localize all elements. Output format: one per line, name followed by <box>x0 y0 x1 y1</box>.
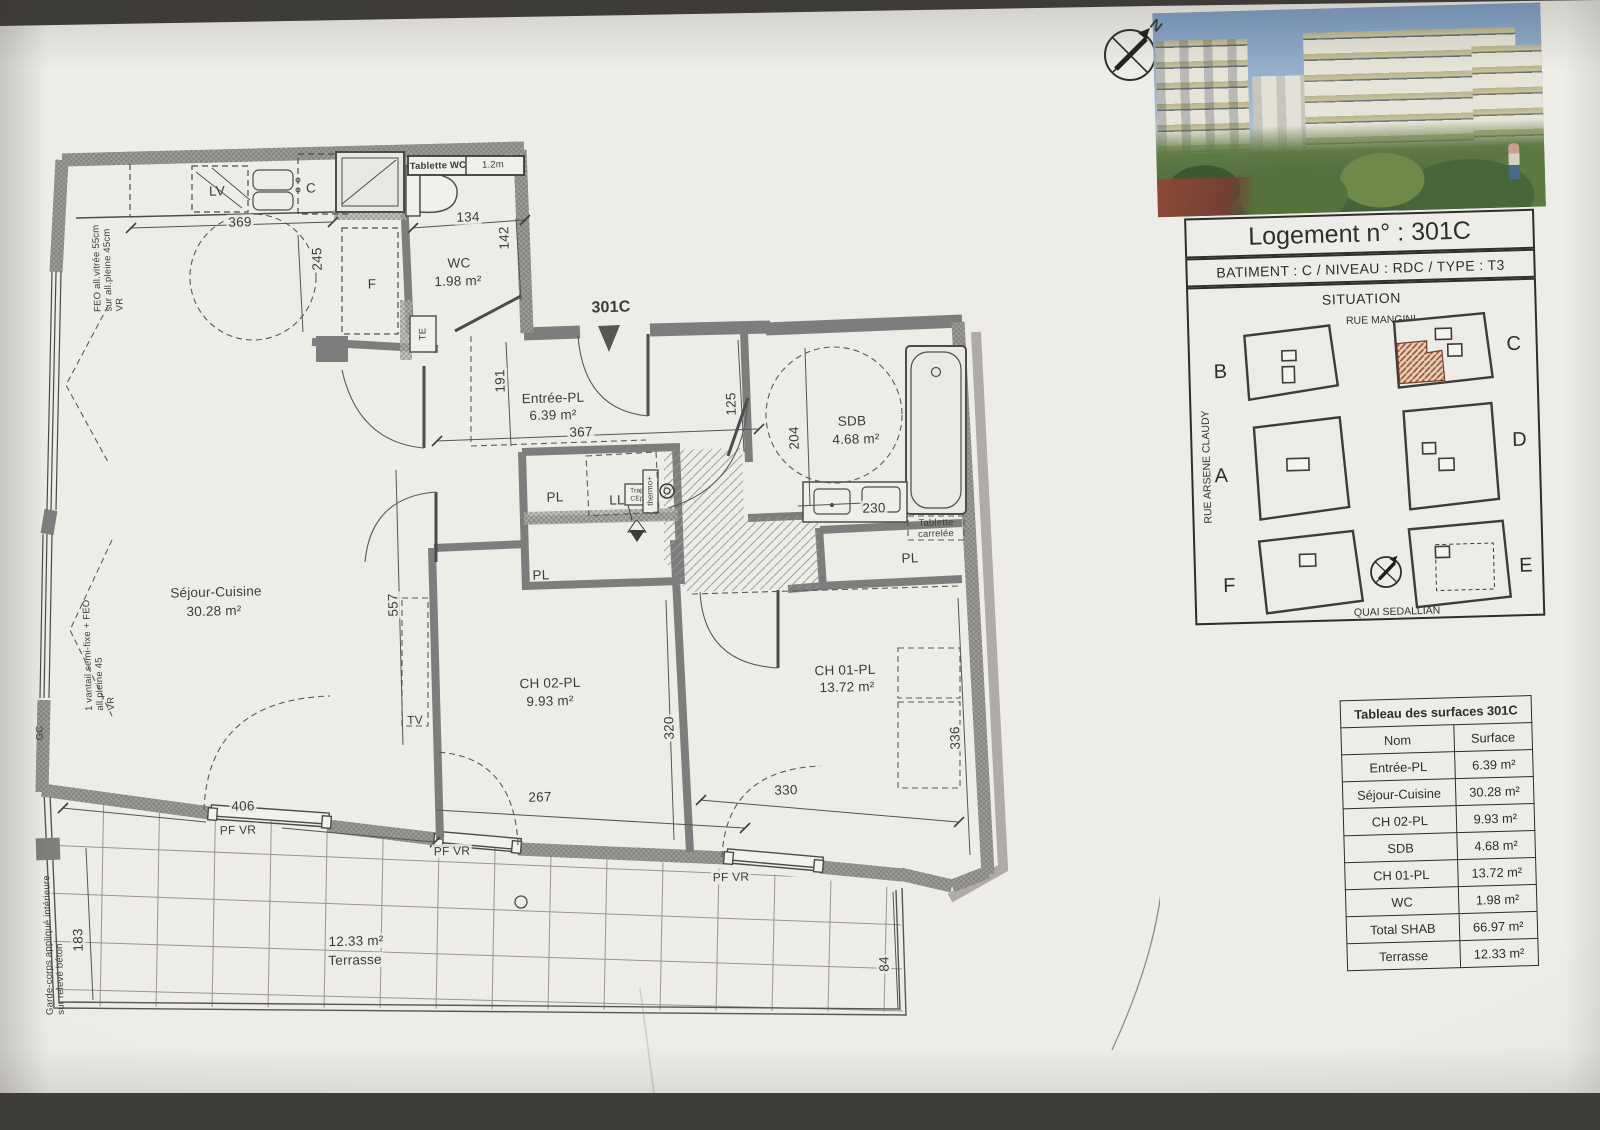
closet-pl1-label: PL <box>546 489 563 504</box>
garde-corps-note: Garde-corps appliqué intérieuresur relev… <box>41 875 67 1015</box>
ch02-room-area: 9.93 m² <box>526 693 574 709</box>
feo-note: FEO all.vitrée 55cmsur all.pleine 45cmVR <box>90 224 125 312</box>
ch02-room-label: CH 02-PL <box>519 675 580 691</box>
situation-box: SITUATION RUE MANGINI RUE ARSENE CLAUDY … <box>1186 278 1545 626</box>
kitchen-c-label: C <box>306 180 316 195</box>
thermo-label: thermo+ <box>645 476 655 506</box>
photographed-floorplan-sheet: { "plan": { "marker": "301C", "compass_n… <box>0 0 1600 1093</box>
dim-330: 330 <box>772 782 799 798</box>
sdb-room-area: 4.68 m² <box>832 431 880 447</box>
terrasse-area: 12.33 m² <box>326 933 385 949</box>
kitchen-lv-label: LV <box>209 183 225 198</box>
unit-title: Logement n° : 301C <box>1248 216 1471 251</box>
vantail-note: 1 vantail semi-fixe + FEOall.pleine 45VR <box>81 599 117 711</box>
dim-267: 267 <box>526 789 553 805</box>
dim-204: 204 <box>786 424 802 452</box>
tablette-carrelee-label2: carrelée <box>918 528 954 540</box>
right-panel: Logement n° : 301C BATIMENT : C / NIVEAU… <box>0 0 1600 1130</box>
trap-cep-label1: Trap <box>630 487 644 494</box>
sejour-room-label: Séjour-Cuisine <box>170 583 262 600</box>
dim-245: 245 <box>309 245 325 273</box>
entree-room-label: Entrée-PL <box>522 390 585 407</box>
pf-vr-label-1: PF VR <box>218 823 259 838</box>
dim-142: 142 <box>496 224 512 252</box>
tablette-wc-length: 1.2m <box>482 159 504 171</box>
map-compass-icon <box>1371 556 1402 588</box>
gc-label: GC <box>34 726 45 741</box>
photo-person <box>1508 143 1520 179</box>
building-photo <box>1152 2 1546 217</box>
pf-vr-label-3: PF VR <box>711 870 752 885</box>
dim-557: 557 <box>385 591 401 619</box>
dim-125: 125 <box>723 390 739 418</box>
dim-84: 84 <box>876 954 892 974</box>
dim-320: 320 <box>661 714 677 742</box>
dim-367: 367 <box>567 424 594 440</box>
ch01-room-label: CH 01-PL <box>814 662 875 678</box>
photo-boardwalk <box>1157 177 1254 218</box>
situation-map <box>1188 280 1543 624</box>
dim-369: 369 <box>226 214 253 230</box>
trap-cep-label2: CEp <box>630 495 643 502</box>
closet-pl2-label: PL <box>532 567 549 582</box>
ch01-room-area: 13.72 m² <box>819 679 874 695</box>
laundry-ll-label: LL <box>609 492 625 507</box>
terrasse-label: Terrasse <box>326 952 384 968</box>
wc-room-area: 1.98 m² <box>434 273 482 289</box>
pf-vr-label-2: PF VR <box>432 844 473 859</box>
closet-pl3-label: PL <box>901 550 918 565</box>
unit-marker-301c: 301C <box>591 299 630 318</box>
tablette-wc-label: Tablette WC <box>410 160 467 172</box>
surface-table: Tableau des surfaces 301C Nom Surface En… <box>1340 695 1539 971</box>
table-row: Terrasse12.33 m² <box>1347 938 1539 970</box>
entree-room-area: 6.39 m² <box>529 407 577 423</box>
dim-183: 183 <box>70 926 86 954</box>
tablette-carrelee-label: Tablette <box>918 517 953 529</box>
dim-336: 336 <box>947 724 963 752</box>
sdb-room-label: SDB <box>838 413 867 429</box>
col-header-surface: Surface <box>1454 723 1533 752</box>
kitchen-f-label: F <box>368 276 377 291</box>
dim-191: 191 <box>492 367 508 395</box>
dim-134: 134 <box>454 209 481 225</box>
dim-230: 230 <box>860 500 887 516</box>
tv-label: TV <box>407 713 423 727</box>
dim-406: 406 <box>229 798 256 814</box>
col-header-nom: Nom <box>1341 725 1454 755</box>
unit-subtitle: BATIMENT : C / NIVEAU : RDC / TYPE : T3 <box>1216 256 1505 280</box>
wc-room-label: WC <box>447 255 470 271</box>
sejour-room-area: 30.28 m² <box>186 603 241 619</box>
te-duct-label: TE <box>417 328 428 341</box>
